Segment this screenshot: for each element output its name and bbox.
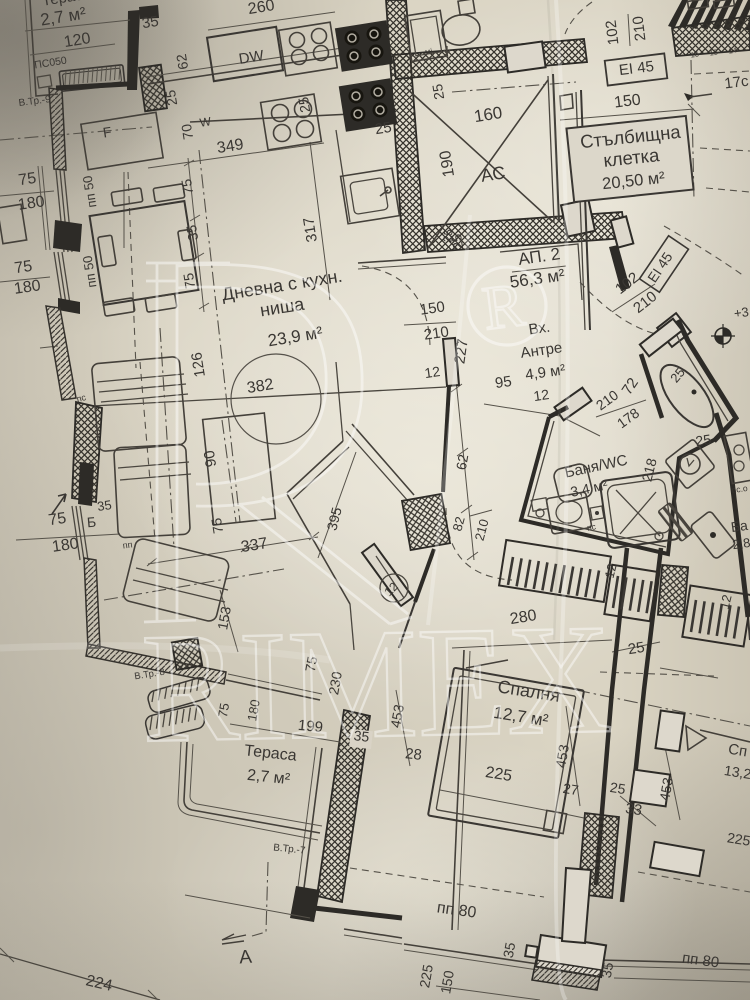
svg-text:90: 90 [201, 449, 220, 468]
svg-text:62: 62 [453, 453, 471, 471]
svg-text:Ба: Ба [730, 517, 749, 535]
svg-text:А: А [239, 947, 253, 969]
svg-text:95: 95 [494, 373, 513, 392]
svg-text:75: 75 [47, 510, 67, 529]
svg-text:12: 12 [532, 386, 550, 404]
svg-text:33: 33 [624, 800, 643, 819]
svg-text:пп: пп [122, 539, 133, 550]
svg-text:25: 25 [374, 119, 393, 138]
svg-text:Сп: Сп [727, 741, 748, 761]
svg-text:25: 25 [627, 639, 646, 658]
svg-text:14: 14 [728, 45, 738, 55]
svg-text:35: 35 [598, 961, 616, 979]
svg-text:75: 75 [178, 178, 196, 196]
svg-text:25: 25 [295, 96, 313, 114]
svg-text:+3: +3 [733, 304, 750, 321]
svg-text:35: 35 [183, 224, 201, 242]
svg-text:12: 12 [423, 363, 441, 381]
svg-text:75: 75 [13, 258, 33, 277]
svg-text:75: 75 [208, 517, 226, 535]
svg-text:150: 150 [613, 91, 642, 111]
svg-text:210: 210 [423, 323, 450, 343]
svg-text:25: 25 [694, 431, 712, 449]
svg-text:16: 16 [690, 49, 700, 59]
svg-text:27: 27 [562, 780, 580, 798]
svg-text:210: 210 [630, 15, 650, 42]
svg-text:2,8: 2,8 [731, 535, 750, 552]
svg-text:25: 25 [162, 89, 180, 107]
svg-text:150: 150 [419, 298, 446, 318]
svg-text:25: 25 [429, 83, 447, 101]
svg-text:62: 62 [173, 53, 191, 71]
svg-text:17с: 17с [723, 73, 750, 93]
svg-text:25: 25 [609, 779, 627, 797]
svg-text:АС: АС [479, 162, 506, 186]
svg-text:35: 35 [96, 497, 112, 514]
svg-text:Б: Б [86, 514, 97, 531]
svg-text:75: 75 [17, 170, 37, 189]
svg-text:102: 102 [603, 19, 623, 46]
svg-text:35: 35 [500, 941, 518, 959]
svg-text:25: 25 [440, 228, 455, 243]
svg-text:70: 70 [178, 123, 196, 141]
svg-text:35: 35 [141, 13, 160, 32]
svg-text:RIMEX: RIMEX [140, 591, 614, 775]
svg-text:15: 15 [709, 47, 719, 57]
